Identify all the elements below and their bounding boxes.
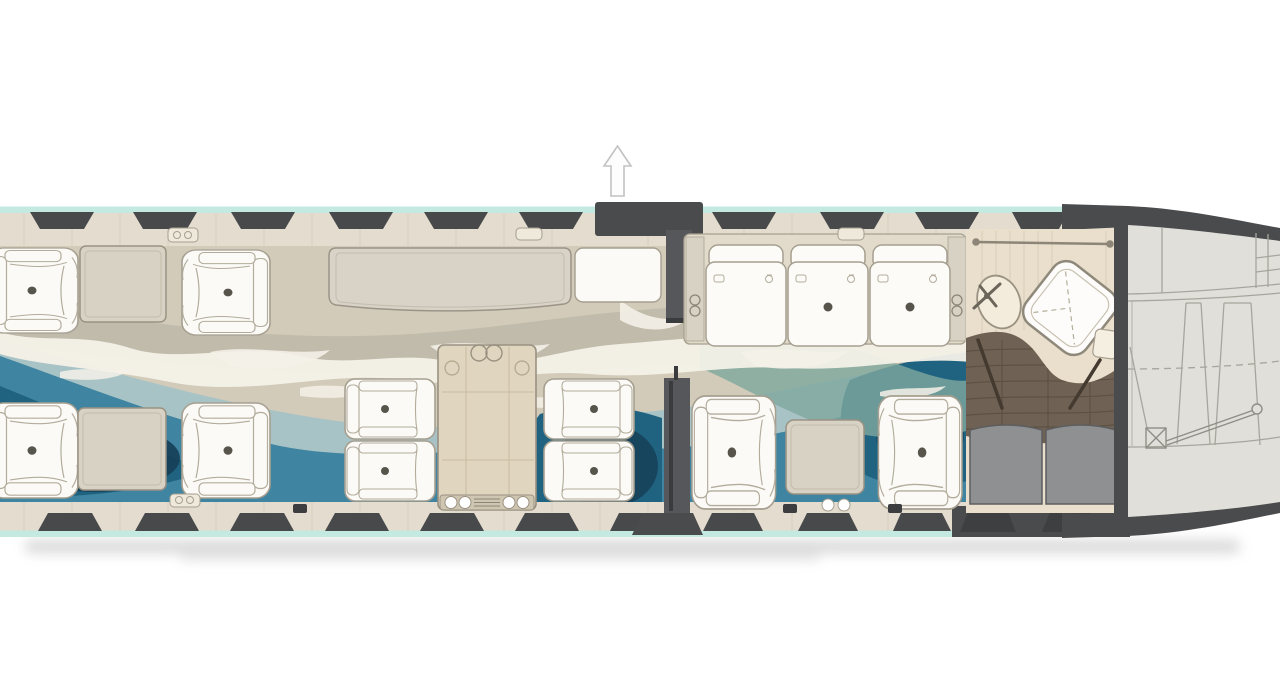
lav-closet-left [970,425,1042,504]
aft-side-table [786,420,864,494]
lav-aft-wall [1114,224,1128,518]
credenza [329,248,571,311]
entry-cabinet [575,248,661,302]
cabin-floorplan [0,0,1280,675]
dining-seat-2 [345,441,435,501]
seat-fwd-top-left [0,248,78,333]
dining-seat-4 [544,441,634,501]
partition-base [632,513,703,535]
divan-cushion-3 [870,245,950,346]
seat-aft-left [692,396,776,509]
side-table-fwd-bottom [78,408,166,490]
divan [684,234,966,346]
floorplan-canvas [0,0,1280,675]
baggage-bay [1128,225,1280,517]
lav-closet-right [1046,425,1116,504]
seat-fwd-bottom-right [182,403,270,498]
divan-console-left [686,237,704,341]
entry-partition-lower [664,378,690,515]
lavatory [960,224,1128,518]
divan-cushion-1 [706,245,786,346]
seat-fwd-top-right [182,250,270,335]
seat-fwd-bottom-left [0,403,78,498]
dining-seat-3 [544,379,634,439]
entry-door-arrow [604,146,631,196]
seat-aft-right [878,396,962,509]
fuselage-shadow [25,540,1240,561]
trim-strip-bottom [0,531,1068,538]
dining-table [438,345,536,510]
side-table-fwd-top [80,246,166,322]
divan-cushion-2 [788,245,868,346]
dining-seat-1 [345,379,435,439]
